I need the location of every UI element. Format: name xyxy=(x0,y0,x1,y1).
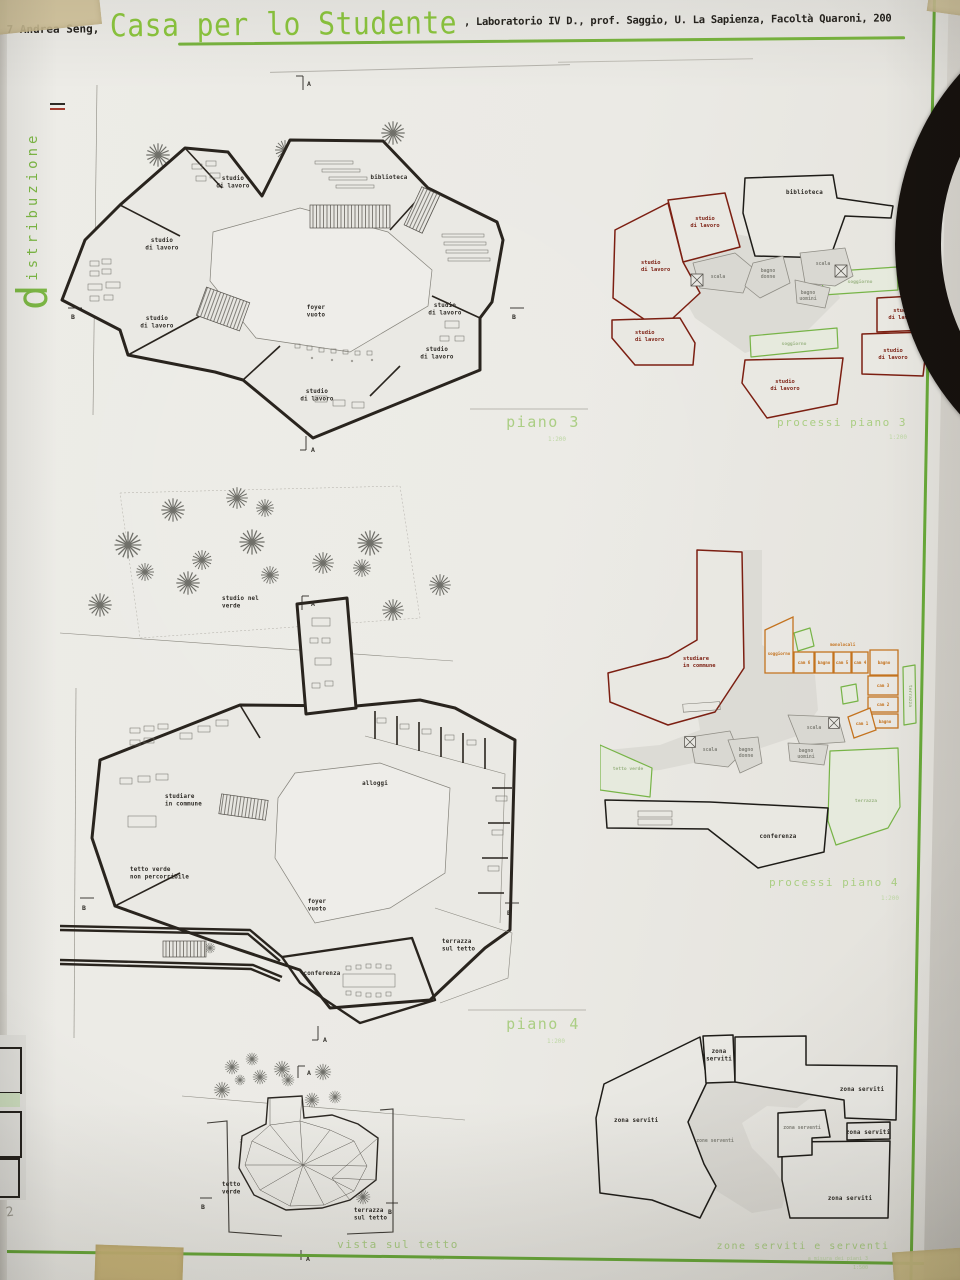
fragment-box xyxy=(0,1047,22,1094)
poster-header: 07 Andrea Seng, Casa per lo Studente , L… xyxy=(0,0,960,68)
vista-sul-tetto-plan: A A B B tettoverde terrazzasul tetto vis… xyxy=(182,1048,467,1266)
poster-photo: 07 Andrea Seng, Casa per lo Studente , L… xyxy=(0,0,960,1280)
room-label-conferenza: conferenza xyxy=(304,971,341,977)
room-label-foyer: foyervuoto xyxy=(307,305,326,318)
zone-label-serventi: zone serventi xyxy=(696,1138,734,1144)
room-label-studio-nel-verde: studio nelverde xyxy=(222,596,259,609)
zone-label-bagno: bagno xyxy=(878,660,891,665)
zone-label-soggiorno: soggiorno xyxy=(782,341,807,347)
zone-label-soggiorno: soggiorno xyxy=(848,279,873,285)
fragment-green-band xyxy=(0,1093,20,1107)
zone-label-cam2: cam 2 xyxy=(877,702,890,707)
section-marker-b: B xyxy=(82,904,86,912)
section-marker-b: B xyxy=(71,313,75,321)
sidebar-vertical-label: distribuzione xyxy=(12,62,54,310)
masking-tape-bottom-left xyxy=(94,1244,183,1280)
zone-serviti-diagram: zona serviti zonaserviti zona serviti zo… xyxy=(592,1028,932,1276)
processi3-scale: 1:200 xyxy=(889,434,907,441)
zone-label-cam5: cam 5 xyxy=(836,660,849,665)
zone-label-cam6: cam 6 xyxy=(798,660,811,665)
neighbour-poster-fragment xyxy=(0,1035,26,1200)
pencil-note: 2 xyxy=(5,1205,15,1221)
piano4-scale: 1:200 xyxy=(547,1038,565,1045)
zone-label-serviti: zona serviti xyxy=(840,1087,885,1093)
zone-label-scala: scala xyxy=(816,261,831,267)
zone-label-bagno: bagno xyxy=(818,660,831,665)
fragment-box xyxy=(0,1111,22,1158)
zone-label-conferenza: conferenza xyxy=(760,834,797,840)
piano3-scale: 1:200 xyxy=(548,436,566,443)
room-label-terrazza: terrazzasul tetto xyxy=(442,939,476,952)
section-marker-a: A xyxy=(323,1036,327,1044)
zone-label-monolocali: monolocali xyxy=(830,642,856,647)
zone-label-terrazza: terrazza xyxy=(907,685,913,707)
piano4-plan: A A B B studio nelverde studiarein commu… xyxy=(60,478,605,1053)
sidebar-initial: d xyxy=(8,281,57,310)
section-marker-b: B xyxy=(507,909,511,917)
section-marker-a: A xyxy=(311,446,315,454)
zone-label-serventi: zona serventi xyxy=(783,1125,821,1131)
processi-piano3-diagram: studiodi lavoro studiodi lavoro studiodi… xyxy=(605,168,935,458)
course-info: , Laboratorio IV D., prof. Saggio, U. La… xyxy=(464,12,892,28)
processi4-caption: processi piano 4 xyxy=(769,876,899,889)
room-label-foyer: foyervuoto xyxy=(308,899,327,912)
processi4-scale: 1:200 xyxy=(881,895,899,902)
room-label-alloggi: alloggi xyxy=(362,781,388,787)
zone-label-bagno: bagno xyxy=(879,719,892,724)
sidebar-rest: istribuzione xyxy=(25,132,41,281)
processi3-caption: processi piano 3 xyxy=(777,416,907,429)
masking-tape-bottom-right xyxy=(892,1248,960,1280)
zone-label-tetto-verde: tetto verde xyxy=(613,766,644,772)
vista-caption: vista sul tetto xyxy=(337,1238,459,1251)
zone-label-cam4: cam 4 xyxy=(854,660,867,665)
piano3-plan: A A B B studiodi lavoro biblioteca studi… xyxy=(60,66,600,466)
section-marker-b: B xyxy=(388,1208,392,1216)
section-marker-a: A xyxy=(307,1069,311,1077)
room-label-tetto-verde: tettoverde xyxy=(222,1182,241,1195)
section-marker-a: A xyxy=(311,600,315,608)
room-label-biblioteca: biblioteca xyxy=(371,175,408,181)
piano3-caption: piano 3 xyxy=(506,413,580,431)
zone-label-serviti: zona serviti xyxy=(828,1196,873,1202)
zone-label-biblioteca: biblioteca xyxy=(786,190,823,196)
zone-label-cam1: cam 1 xyxy=(856,721,869,726)
zone-label-cam3: cam 3 xyxy=(877,683,890,688)
zone-label-scala: scala xyxy=(711,274,726,280)
section-marker-b: B xyxy=(512,313,516,321)
zone-label-serviti: zona serviti xyxy=(614,1118,659,1124)
zone-label-soggiorno: soggiorno xyxy=(768,651,791,656)
zone-label-terrazza: terrazza xyxy=(855,798,877,804)
zone-subscale: 1:500 xyxy=(853,1265,868,1271)
fragment-box xyxy=(0,1158,20,1198)
zone-label-scala: scala xyxy=(703,747,718,753)
processi-piano4-diagram: monolocali soggiorno cam 6 bagno cam 5 c… xyxy=(600,545,932,913)
zone-label-scala: scala xyxy=(807,725,822,731)
zone-label-serviti: zona serviti xyxy=(846,1130,891,1136)
poster-title: Casa per lo Studente xyxy=(110,4,457,44)
piano4-caption: piano 4 xyxy=(506,1015,580,1033)
room-label-terrazza: terrazzasul tetto xyxy=(354,1208,388,1221)
section-marker-a: A xyxy=(307,80,311,88)
section-marker-b: B xyxy=(201,1203,205,1211)
zone-caption: zone serviti e serventi xyxy=(717,1241,890,1252)
